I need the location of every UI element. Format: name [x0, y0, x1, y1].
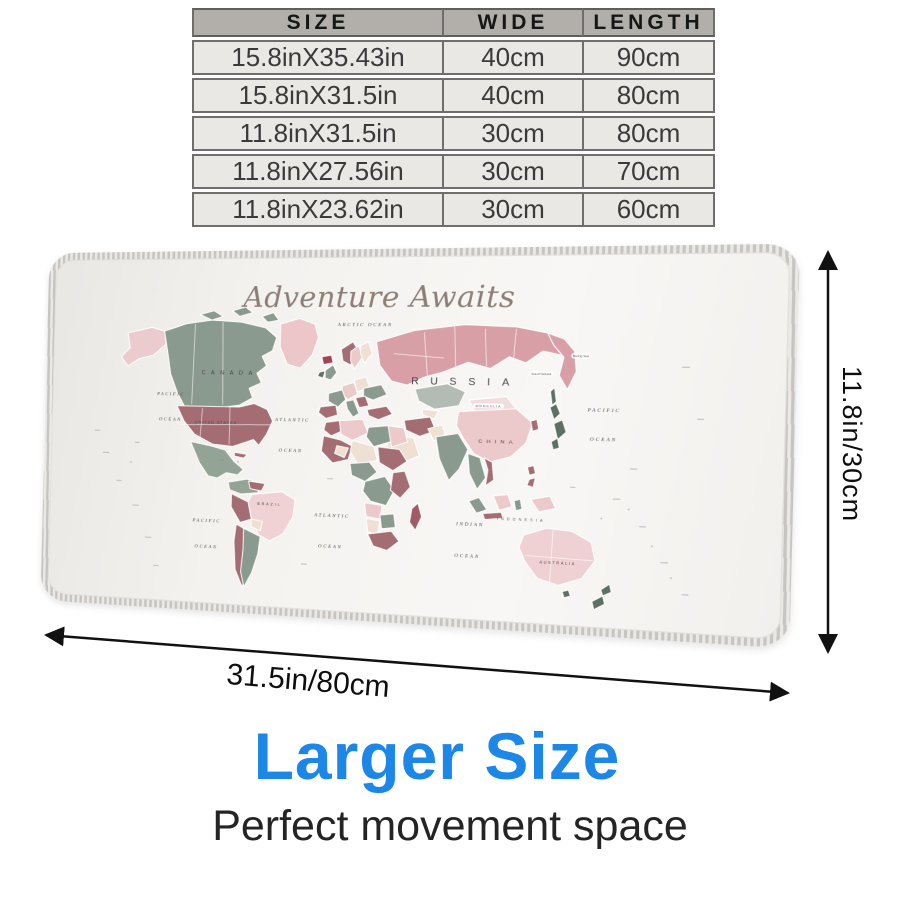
script-title: Adventure Awaits	[240, 281, 516, 315]
table-header-row: SIZE WIDE LENGTH	[192, 8, 715, 37]
iceland-shape	[322, 355, 334, 365]
wide-cell: 30cm	[442, 154, 582, 189]
cuba-shape	[234, 452, 247, 458]
country-label-canada: CANADA	[201, 370, 257, 377]
country-label-russia: RUSSIA	[411, 375, 521, 388]
turkey-shape	[367, 406, 393, 420]
length-cell: 80cm	[582, 116, 715, 151]
south-america	[225, 478, 295, 589]
ocean-label-atlantic-n-2: OCEAN	[279, 447, 303, 453]
length-cell: 80cm	[582, 78, 715, 113]
japan-shape	[550, 403, 561, 419]
ocean-label-pacific-sw: PACIFIC	[192, 517, 222, 524]
pad-surface: Adventure Awaits ARCTIC OCEAN PACIFIC OC…	[47, 252, 790, 640]
width-arrow	[36, 622, 802, 706]
table-row: 15.8inX35.43in 40cm 90cm	[192, 40, 715, 75]
subheadline: Perfect movement space	[0, 802, 900, 851]
mexico-shape	[190, 442, 244, 479]
ocean-label-pacific-nw: PACIFIC	[156, 391, 185, 397]
size-cell: 11.8inX23.62in	[192, 192, 442, 227]
world-map: Adventure Awaits ARCTIC OCEAN PACIFIC OC…	[47, 252, 790, 640]
australia-shape	[518, 527, 596, 587]
peru-shape	[231, 494, 252, 523]
ocean-label-pacific-e: PACIFIC	[586, 407, 621, 413]
mousepad: Adventure Awaits ARCTIC OCEAN PACIFIC OC…	[40, 244, 799, 649]
size-cell: 15.8inX31.5in	[192, 78, 442, 113]
product-infographic: SIZE WIDE LENGTH 15.8inX35.43in 40cm 90c…	[0, 0, 900, 900]
ocean-label-pacific-e-2: OCEAN	[590, 436, 617, 442]
table-row: 11.8inX31.5in 30cm 80cm	[192, 116, 715, 151]
header-cell-wide: WIDE	[442, 8, 582, 37]
country-label-china: CHINA	[478, 438, 516, 446]
wide-cell: 30cm	[442, 192, 582, 227]
height-dimension-label: 11.8in/30cm	[836, 366, 867, 522]
north-america	[118, 307, 334, 482]
kazakhstan-shape	[414, 383, 465, 409]
pad-stitched-edge: Adventure Awaits ARCTIC OCEAN PACIFIC OC…	[40, 244, 799, 649]
header-cell-length: LENGTH	[582, 8, 715, 37]
ocean-label-atlantic-s-2: OCEAN	[318, 543, 343, 550]
new-guinea-shape	[530, 495, 556, 512]
ocean-label-atlantic-s: ATLANTIC	[313, 512, 350, 519]
sea-label-bering: Bering Sea	[573, 354, 590, 359]
spain-shape	[318, 405, 338, 419]
size-cell: 15.8inX35.43in	[192, 40, 442, 75]
argentina-shape	[240, 528, 260, 588]
oceania	[517, 527, 613, 611]
france-shape	[328, 390, 346, 408]
ocean-label-indian: INDIAN	[455, 521, 484, 528]
south-africa-shape	[367, 530, 399, 551]
sea-label-okhotsk: Sea of Okhotsk	[531, 373, 552, 377]
ocean-label-arctic: ARCTIC OCEAN	[337, 322, 393, 328]
new-zealand-shape	[600, 584, 611, 597]
alaska-shape	[121, 327, 166, 366]
size-cell: 11.8inX27.56in	[192, 154, 442, 189]
india-shape	[435, 433, 469, 481]
china-shape	[455, 408, 533, 464]
size-cell: 11.8inX31.5in	[192, 116, 442, 151]
greenland-shape	[280, 318, 319, 368]
ocean-label-pacific-sw-2: OCEAN	[195, 543, 218, 550]
header-cell-size: SIZE	[192, 8, 442, 37]
country-label-mongolia: MONGOLIA	[476, 404, 502, 409]
ocean-label-atlantic-n: ATLANTIC	[274, 417, 310, 423]
uk-shape	[325, 365, 337, 381]
madagascar-shape	[409, 503, 422, 531]
country-label-indonesia: INDONESIA	[497, 517, 546, 524]
wide-cell: 40cm	[442, 78, 582, 113]
ocean-label-indian-2: OCEAN	[454, 552, 480, 559]
table-row: 11.8inX27.56in 30cm 70cm	[192, 154, 715, 189]
length-cell: 90cm	[582, 40, 715, 75]
length-cell: 70cm	[582, 154, 715, 189]
ocean-label-pacific-nw-2: OCEAN	[159, 416, 182, 422]
size-table: SIZE WIDE LENGTH 15.8inX35.43in 40cm 90c…	[192, 5, 715, 230]
table-row: 15.8inX31.5in 40cm 80cm	[192, 78, 715, 113]
table-row: 11.8inX23.62in 30cm 60cm	[192, 192, 715, 227]
headline: Larger Size	[0, 718, 874, 794]
length-cell: 60cm	[582, 192, 715, 227]
wide-cell: 30cm	[442, 116, 582, 151]
wide-cell: 40cm	[442, 40, 582, 75]
